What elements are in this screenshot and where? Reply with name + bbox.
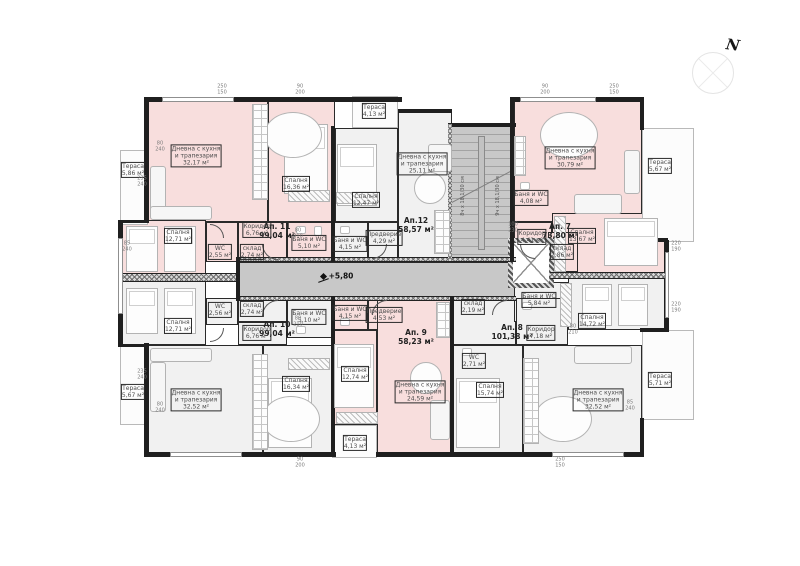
furniture-bed xyxy=(456,378,500,448)
furniture-round xyxy=(410,362,442,394)
furniture-bed xyxy=(618,284,648,326)
furniture-bed xyxy=(164,226,196,272)
furniture-bed xyxy=(582,284,612,326)
dimension-label: 250 150 xyxy=(217,85,227,96)
room xyxy=(333,298,368,330)
furniture-fix xyxy=(520,182,530,190)
wall xyxy=(144,343,149,457)
furniture-fix xyxy=(522,302,532,310)
furniture-bed xyxy=(164,288,196,334)
dimension-label: 90 200 xyxy=(295,85,305,96)
dimension-label: 220 190 xyxy=(671,242,681,253)
window xyxy=(520,97,596,102)
furniture-fix xyxy=(340,318,350,326)
door-arc xyxy=(210,328,224,342)
dimension-label: 220 190 xyxy=(671,303,681,314)
wall xyxy=(144,97,149,223)
furniture-fix xyxy=(462,348,472,356)
furniture-ward xyxy=(336,192,378,204)
furniture-sofa xyxy=(574,194,622,214)
wall xyxy=(236,257,240,301)
dimension-label: 85 240 xyxy=(122,242,132,253)
furniture-kit xyxy=(252,354,268,450)
stairwell xyxy=(450,126,514,262)
terrace xyxy=(332,425,377,458)
furniture-bed xyxy=(334,344,374,408)
room xyxy=(238,322,287,345)
room xyxy=(333,222,368,262)
furniture-ward xyxy=(336,412,378,424)
furniture-ward xyxy=(560,283,572,327)
room xyxy=(238,222,287,262)
furniture-ward xyxy=(288,358,330,370)
dimension-label: 90 200 xyxy=(295,458,305,469)
window xyxy=(665,252,669,318)
wall xyxy=(398,109,452,113)
dimension-label: 80 210 xyxy=(293,317,303,328)
corridor xyxy=(238,262,516,298)
room xyxy=(148,100,268,222)
terrace xyxy=(642,330,694,420)
furniture-sofa xyxy=(624,150,640,194)
furniture-sofa xyxy=(428,144,452,172)
north-label: N xyxy=(725,35,741,55)
window xyxy=(170,452,242,457)
furniture-oval xyxy=(534,396,592,442)
wall xyxy=(550,272,668,279)
furniture-fix xyxy=(314,226,322,236)
dimension-label: 80 240 xyxy=(155,403,165,414)
furniture-round xyxy=(414,172,446,204)
wall xyxy=(450,296,454,457)
dimension-label: 235 240 xyxy=(137,370,147,381)
compass-circle-icon xyxy=(692,52,734,94)
floor-plan-canvas: Ап. 11 99,04 м²Ап.12 58,57 м²Ап. 7 73,80… xyxy=(0,0,800,566)
dimension-label: 80 210 xyxy=(568,325,578,336)
furniture-sofa xyxy=(574,346,632,364)
dimension-label: 80 240 xyxy=(155,142,165,153)
furniture-oval xyxy=(262,396,320,442)
furniture-ward xyxy=(554,216,566,272)
wall xyxy=(640,97,644,130)
dimension-label: 100 230 xyxy=(508,223,518,234)
furniture-oval xyxy=(540,112,598,158)
furniture-bed xyxy=(126,288,158,334)
wall xyxy=(510,97,514,262)
wall xyxy=(640,418,644,457)
furniture-fix xyxy=(340,226,350,234)
wall xyxy=(118,273,240,282)
furniture-kit xyxy=(436,302,450,338)
wall xyxy=(448,123,516,127)
dimension-label: 250 150 xyxy=(555,458,565,469)
furniture-kit xyxy=(434,210,450,254)
dimension-label: 80 210 xyxy=(293,229,303,240)
window xyxy=(162,97,234,102)
dimension-label: 85 240 xyxy=(625,401,635,412)
furniture-kit xyxy=(523,358,539,444)
dimension-label: 90 200 xyxy=(540,85,550,96)
dimension-label: 250 150 xyxy=(609,85,619,96)
furniture-sofa xyxy=(430,400,450,440)
furniture-oval xyxy=(264,112,322,158)
furniture-ward xyxy=(288,190,330,202)
furniture-kit xyxy=(514,136,526,176)
wall xyxy=(640,328,668,332)
room xyxy=(206,298,238,325)
furniture-sofa xyxy=(150,206,212,220)
wall xyxy=(236,296,516,301)
wall xyxy=(331,126,335,262)
furniture-sofa xyxy=(150,348,212,362)
north-arrow: N xyxy=(692,46,740,94)
stair-stringer xyxy=(478,136,485,250)
furniture-kit xyxy=(252,104,268,200)
floor-plan: Ап. 11 99,04 м²Ап.12 58,57 м²Ап. 7 73,80… xyxy=(0,0,800,566)
dimension-label: 235 240 xyxy=(137,177,147,188)
wall xyxy=(118,220,148,223)
furniture-bed xyxy=(604,218,658,266)
